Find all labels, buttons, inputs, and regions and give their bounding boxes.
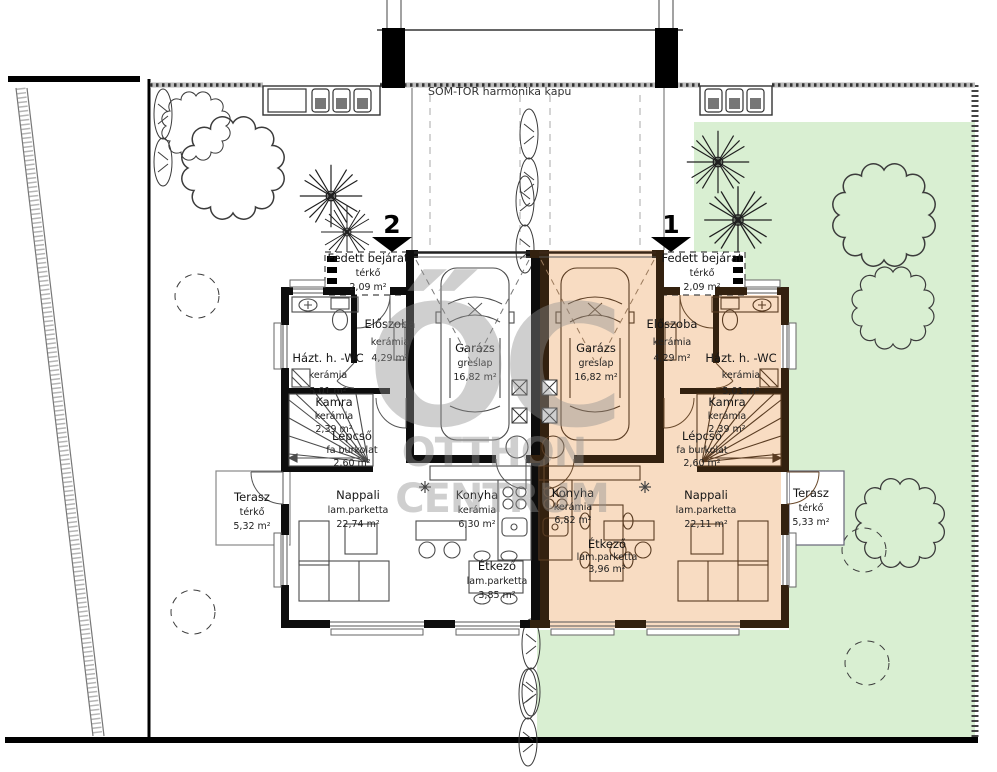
room-label: Nappali [684, 488, 728, 502]
room-material: lam.parketta [328, 505, 389, 516]
room-label: Étkező [588, 536, 626, 551]
room-material: lam.parketta [577, 552, 638, 563]
watermark-logo: ŐC OTTHON CENTRUM [367, 269, 617, 522]
room-label: Nappali [336, 488, 380, 502]
room-material: kerámia [722, 370, 760, 381]
unit-marker-1: 1 [651, 210, 691, 252]
room-material: lam.parketta [467, 576, 528, 587]
unit-1-arrow-icon [651, 237, 691, 252]
room-area: 3,96 m² [588, 564, 625, 575]
bush-icon [175, 274, 219, 318]
bin-store-right [700, 86, 772, 115]
pine-tree-icon [300, 165, 362, 227]
bush-icon [171, 590, 215, 634]
room-area: 5,33 m² [792, 517, 829, 528]
room-label: Lépcső [682, 429, 722, 443]
room-area: 22,11 m² [684, 519, 727, 530]
deciduous-tree-icon [162, 92, 230, 160]
room-material: térkő [240, 507, 265, 518]
unit-2-number: 2 [383, 210, 400, 239]
room-material: lam.parketta [676, 505, 737, 516]
boundary-bottom [5, 737, 978, 743]
room-area: 2,60 m² [333, 458, 370, 469]
floorplan-page: SOM-TOR harmónika kapu [0, 0, 997, 772]
room-label: Terasz [233, 490, 270, 504]
room-material: fa burkolat [676, 445, 728, 456]
room-material: térkő [799, 503, 824, 514]
boundary-top-left [8, 76, 140, 82]
room-label: Étkező [478, 558, 516, 573]
room-area: 2,09 m² [683, 282, 720, 293]
room-label: Terasz [792, 486, 829, 500]
room-label: Házt. h. -WC [292, 351, 363, 365]
room-label: Fedett bejárat [661, 251, 743, 265]
room-label: Házt. h. -WC [705, 351, 776, 365]
room-area: 5,32 m² [233, 521, 270, 532]
room-label: Kamra [315, 395, 352, 409]
room-label: Előszoba [647, 317, 698, 331]
room-material: kerámia [708, 411, 746, 422]
room-material: kerámia [653, 337, 691, 348]
room-material: térkő [690, 268, 715, 279]
watermark-line1: OTTHON [402, 430, 586, 476]
room-area: 4,29 m² [653, 353, 690, 364]
watermark-line2: CENTRUM [395, 476, 609, 522]
room-label: Fedett bejárat [327, 251, 409, 265]
driveway-dashes [430, 95, 640, 246]
floorplan-drawing: SOM-TOR harmónika kapu [0, 0, 997, 772]
room-material: kerámia [315, 411, 353, 422]
deciduous-tree-icon [182, 117, 284, 219]
room-label: Kamra [708, 395, 745, 409]
room-area: 3,85 m² [478, 590, 515, 601]
street-gate: SOM-TOR harmónika kapu [377, 0, 683, 250]
room-area: 22,74 m² [336, 519, 379, 530]
room-material: kerámia [309, 370, 347, 381]
room-area: 2,60 m² [683, 458, 720, 469]
gate-post-right [655, 28, 678, 88]
unit-1-number: 1 [662, 210, 679, 239]
west-hatched-strip [16, 88, 104, 736]
unit-2-arrow-icon [372, 237, 412, 252]
shrub-icon [520, 109, 538, 206]
unit-marker-2: 2 [372, 210, 412, 252]
sofa-set [299, 521, 389, 601]
bin-store-left [263, 86, 380, 115]
gate-post-left [382, 28, 405, 88]
